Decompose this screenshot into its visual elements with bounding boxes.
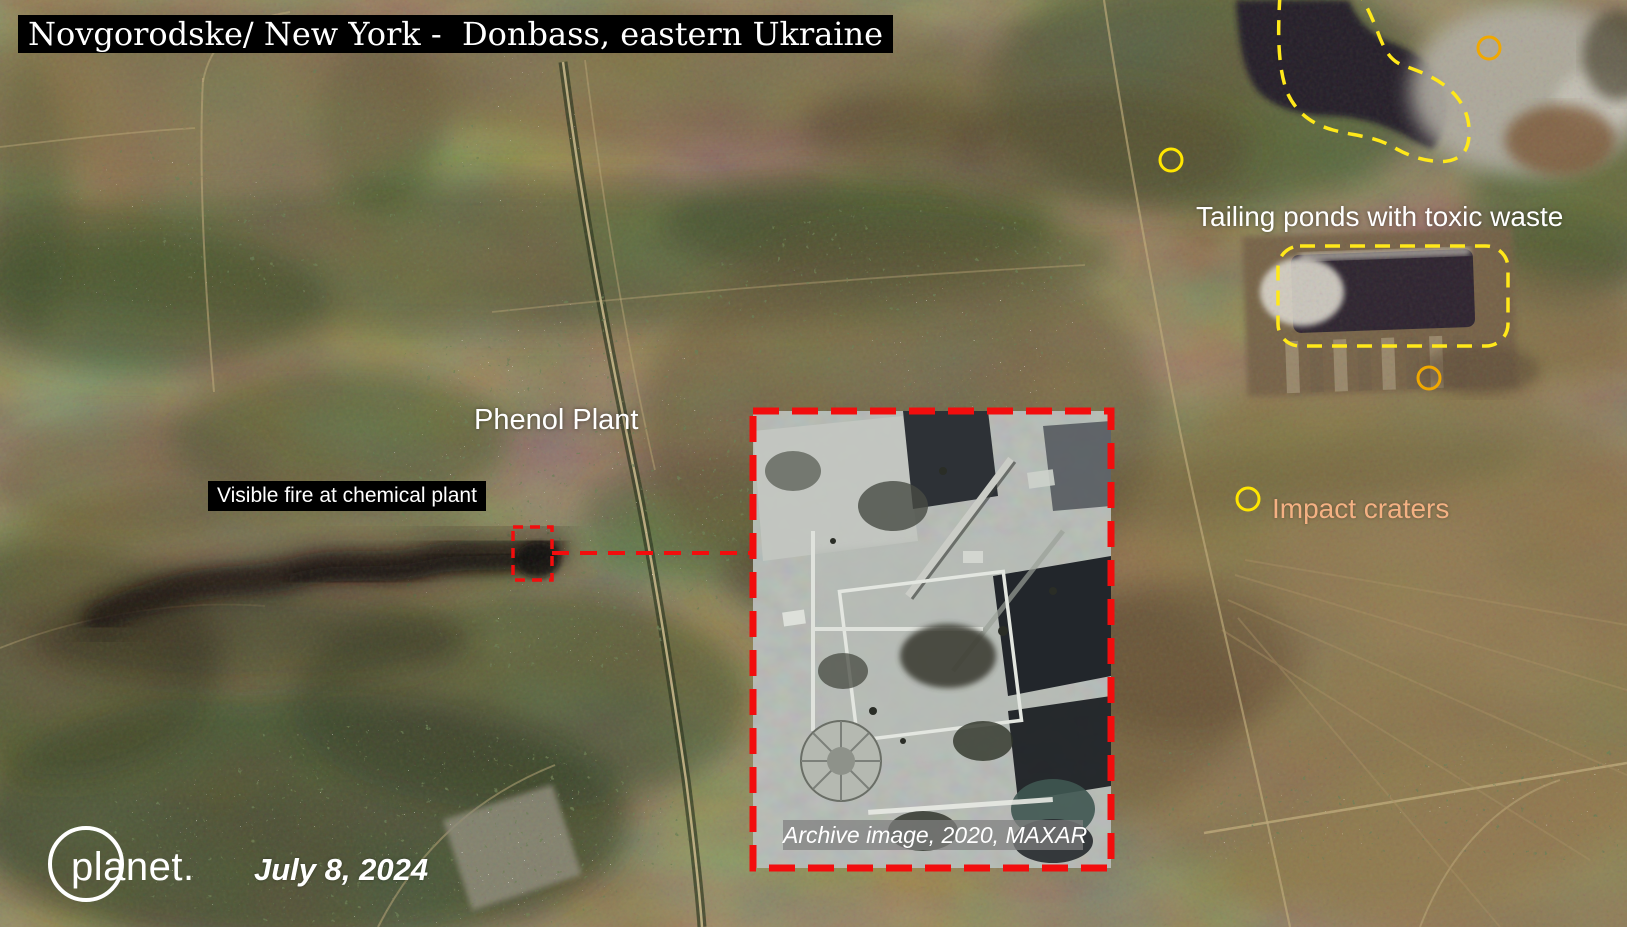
sludge-beds	[1285, 335, 1468, 393]
industrial-buildings	[443, 784, 582, 910]
tailing-ponds-label: Tailing ponds with toxic waste	[1196, 201, 1563, 233]
impact-crater-marker-2	[1160, 149, 1182, 171]
planet-logo-wordmark: planet.	[71, 845, 195, 890]
fire-smudge	[516, 542, 560, 578]
waste-area-outline	[1279, 0, 1469, 162]
upper-tailings-pond	[1236, 0, 1627, 175]
smoke-plume	[30, 542, 560, 685]
railway-line	[563, 60, 702, 927]
toxic-tailing-pond	[1242, 227, 1540, 396]
impact-craters-label: Impact craters	[1272, 493, 1449, 525]
page-title: Novgorodske/ New York - Donbass, eastern…	[18, 15, 893, 53]
impact-crater-marker-1	[1478, 37, 1500, 59]
phenol-plant-label: Phenol Plant	[474, 404, 638, 437]
impact-crater-marker-4	[1237, 488, 1259, 510]
archive-inset-image	[753, 411, 1111, 868]
impact-crater-marker-3	[1418, 367, 1440, 389]
archive-image-caption: Archive image, 2020, MAXAR	[783, 820, 1083, 850]
source-area-box	[513, 527, 552, 580]
field-tracks	[1222, 560, 1627, 927]
image-date-label: July 8, 2024	[254, 852, 428, 888]
satellite-map-slide: Novgorodske/ New York - Donbass, eastern…	[0, 0, 1627, 927]
tailing-pond-outline	[1278, 246, 1508, 346]
archive-plant-graphic	[753, 411, 1111, 868]
tailings-heap	[1410, 5, 1627, 175]
visible-fire-label: Visible fire at chemical plant	[208, 481, 486, 511]
